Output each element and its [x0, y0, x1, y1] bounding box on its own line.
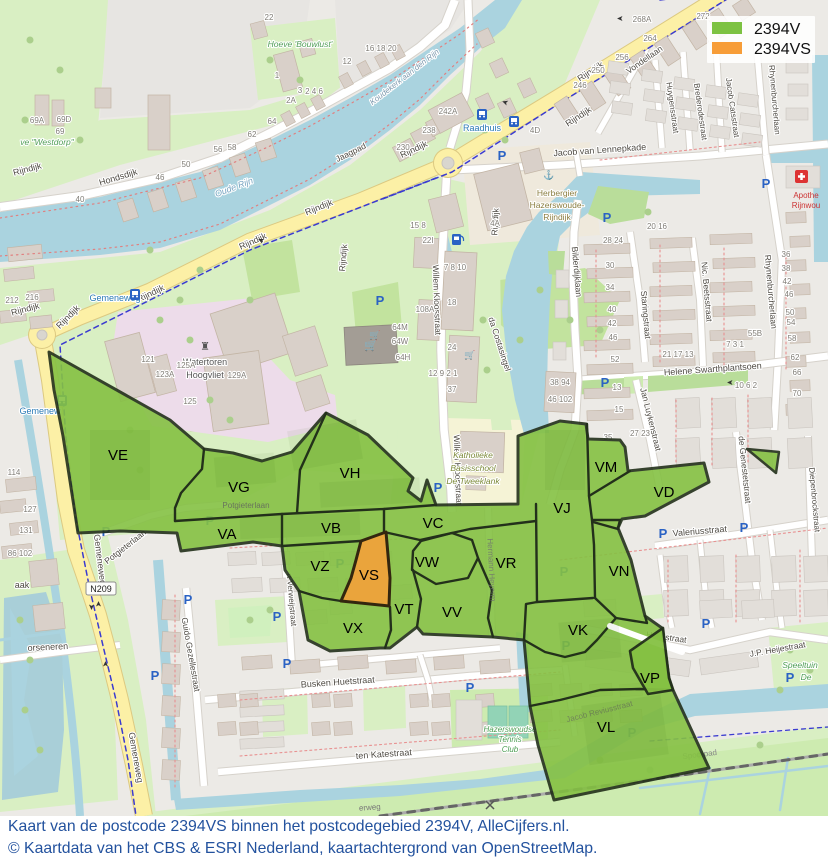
svg-text:46: 46	[156, 173, 165, 182]
svg-text:18: 18	[448, 298, 457, 307]
svg-text:40: 40	[76, 195, 85, 204]
svg-text:24: 24	[448, 343, 457, 352]
svg-text:127: 127	[23, 505, 37, 514]
svg-text:⚓: ⚓	[543, 169, 554, 180]
svg-text:P: P	[601, 375, 610, 390]
svg-text:125: 125	[183, 397, 197, 406]
svg-text:2 4 6: 2 4 6	[305, 87, 323, 96]
svg-text:P: P	[283, 656, 292, 671]
svg-text:131: 131	[19, 526, 33, 535]
svg-text:21 17 13: 21 17 13	[662, 350, 694, 359]
svg-text:212: 212	[5, 296, 19, 305]
svg-text:246: 246	[573, 81, 587, 90]
svg-text:➤: ➤	[94, 600, 103, 607]
svg-text:VK: VK	[568, 622, 588, 639]
svg-text:VM: VM	[595, 459, 618, 476]
svg-text:123A: 123A	[156, 370, 175, 379]
svg-text:Speeltuin: Speeltuin	[782, 660, 818, 670]
svg-text:🛒: 🛒	[464, 349, 475, 360]
svg-text:22: 22	[265, 13, 274, 22]
svg-text:46 102: 46 102	[548, 395, 573, 404]
svg-text:28 24: 28 24	[603, 236, 624, 245]
svg-text:129A: 129A	[228, 371, 247, 380]
svg-text:40: 40	[608, 305, 617, 314]
svg-text:46: 46	[609, 333, 618, 342]
svg-text:P: P	[659, 526, 668, 541]
svg-text:VL: VL	[597, 719, 615, 736]
svg-text:VD: VD	[654, 484, 675, 501]
svg-text:VZ: VZ	[310, 558, 329, 575]
svg-text:34: 34	[606, 283, 615, 292]
svg-text:37: 37	[448, 385, 457, 394]
svg-text:12: 12	[343, 57, 352, 66]
svg-text:➤: ➤	[726, 378, 733, 387]
svg-text:P: P	[498, 148, 507, 163]
svg-text:ve "Westdorp": ve "Westdorp"	[20, 137, 75, 147]
svg-text:VT: VT	[394, 601, 413, 618]
svg-text:VJ: VJ	[553, 500, 571, 517]
svg-text:P: P	[151, 668, 160, 683]
svg-text:Apothe: Apothe	[793, 191, 819, 200]
svg-text:Basisschool: Basisschool	[450, 463, 496, 473]
svg-text:64H: 64H	[396, 353, 411, 362]
svg-text:Club: Club	[502, 745, 519, 754]
svg-text:50: 50	[182, 160, 191, 169]
svg-text:46: 46	[785, 290, 794, 299]
svg-text:VX: VX	[343, 620, 363, 637]
svg-text:Rijndijk: Rijndijk	[543, 212, 571, 222]
svg-text:230: 230	[396, 143, 410, 152]
svg-text:264: 264	[643, 34, 657, 43]
svg-text:P: P	[376, 293, 385, 308]
svg-text:2394V: 2394V	[754, 21, 801, 38]
svg-text:Potgieterlaan: Potgieterlaan	[222, 501, 269, 510]
svg-text:Hoeve 'Bouwlust': Hoeve 'Bouwlust'	[268, 39, 333, 49]
svg-text:64: 64	[268, 117, 277, 126]
svg-text:Gemenew: Gemenew	[19, 406, 61, 416]
svg-text:P: P	[702, 616, 711, 631]
svg-text:125A: 125A	[177, 361, 196, 370]
svg-text:256: 256	[615, 53, 629, 62]
svg-text:86 102: 86 102	[8, 549, 33, 558]
svg-text:🛒: 🛒	[364, 339, 378, 352]
svg-text:16 18 20: 16 18 20	[365, 44, 397, 53]
svg-text:🛒: 🛒	[369, 329, 380, 340]
svg-text:Rijnwou: Rijnwou	[792, 201, 820, 210]
svg-text:69A: 69A	[30, 116, 45, 125]
svg-text:30: 30	[606, 261, 615, 270]
svg-text:Hazerswoudse: Hazerswoudse	[484, 725, 537, 734]
svg-text:P: P	[603, 210, 612, 225]
svg-text:2A: 2A	[286, 96, 296, 105]
svg-text:3: 3	[298, 86, 303, 95]
svg-text:66: 66	[793, 368, 802, 377]
svg-text:P: P	[740, 520, 749, 535]
svg-text:22I: 22I	[422, 236, 433, 245]
svg-text:P: P	[786, 670, 795, 685]
svg-text:55B: 55B	[748, 329, 762, 338]
svg-text:De: De	[801, 672, 812, 682]
svg-text:38: 38	[782, 264, 791, 273]
svg-text:VP: VP	[640, 670, 660, 687]
svg-text:Herbergier: Herbergier	[537, 188, 577, 198]
svg-text:52: 52	[611, 355, 620, 364]
svg-text:38 94: 38 94	[550, 378, 571, 387]
svg-text:P: P	[273, 609, 282, 624]
svg-text:108A: 108A	[416, 305, 435, 314]
svg-text:62: 62	[791, 353, 800, 362]
svg-text:➤: ➤	[616, 14, 623, 23]
svg-text:1: 1	[275, 71, 280, 80]
svg-text:42: 42	[783, 277, 792, 286]
svg-text:VR: VR	[496, 555, 517, 572]
svg-text:15 8: 15 8	[410, 221, 426, 230]
svg-text:N209: N209	[90, 584, 112, 594]
svg-text:P: P	[762, 176, 771, 191]
svg-text:216: 216	[25, 293, 39, 302]
svg-text:58: 58	[228, 143, 237, 152]
svg-text:VH: VH	[340, 465, 361, 482]
svg-text:aak: aak	[15, 580, 30, 590]
svg-text:♜: ♜	[200, 341, 210, 353]
svg-text:Katholieke: Katholieke	[453, 450, 493, 460]
svg-text:VA: VA	[218, 526, 237, 543]
svg-text:50: 50	[786, 308, 795, 317]
svg-text:VB: VB	[321, 520, 341, 537]
svg-text:VC: VC	[423, 515, 444, 532]
svg-text:VG: VG	[228, 479, 250, 496]
svg-text:69D: 69D	[57, 115, 72, 124]
svg-text:P: P	[184, 592, 193, 607]
svg-text:114: 114	[8, 468, 21, 477]
svg-text:4A: 4A	[490, 219, 500, 228]
svg-text:15: 15	[615, 405, 624, 414]
svg-text:238: 238	[422, 126, 436, 135]
svg-text:VS: VS	[359, 567, 379, 584]
svg-text:36: 36	[782, 250, 791, 259]
svg-text:70: 70	[793, 389, 802, 398]
svg-text:242A: 242A	[439, 107, 458, 116]
svg-text:64M: 64M	[392, 323, 408, 332]
svg-text:VN: VN	[609, 563, 630, 580]
svg-text:62: 62	[248, 130, 257, 139]
svg-text:58: 58	[788, 334, 797, 343]
svg-text:VE: VE	[108, 447, 128, 464]
svg-text:268A: 268A	[633, 15, 652, 24]
svg-text:orseneren: orseneren	[27, 641, 68, 653]
svg-text:20 16: 20 16	[647, 222, 668, 231]
svg-text:64W: 64W	[392, 337, 409, 346]
svg-text:Hazerswoude-: Hazerswoude-	[530, 200, 585, 210]
svg-text:VW: VW	[415, 554, 440, 571]
svg-text:56: 56	[214, 145, 223, 154]
svg-text:27 23: 27 23	[630, 429, 651, 438]
svg-text:250: 250	[591, 66, 605, 75]
svg-text:121: 121	[141, 355, 155, 364]
svg-text:De Tweeklank: De Tweeklank	[446, 476, 500, 486]
svg-text:4D: 4D	[530, 126, 540, 135]
svg-text:12 9 2 1: 12 9 2 1	[429, 369, 458, 378]
svg-text:Raadhuis: Raadhuis	[463, 123, 502, 133]
svg-text:69: 69	[56, 127, 65, 136]
svg-text:2394VS: 2394VS	[754, 41, 811, 58]
svg-text:7 3 1: 7 3 1	[726, 340, 744, 349]
svg-text:Tennis: Tennis	[498, 735, 521, 744]
svg-text:P: P	[466, 680, 475, 695]
svg-text:13: 13	[613, 383, 622, 392]
svg-text:7 8 10: 7 8 10	[444, 263, 467, 272]
svg-text:10 6 2: 10 6 2	[735, 381, 758, 390]
svg-text:erweg: erweg	[359, 802, 381, 812]
svg-text:P: P	[434, 480, 443, 495]
svg-text:➤: ➤	[101, 660, 110, 667]
svg-text:Hoogvliet: Hoogvliet	[186, 370, 224, 380]
svg-text:42: 42	[608, 319, 617, 328]
svg-text:VV: VV	[442, 604, 462, 621]
svg-text:54: 54	[787, 318, 796, 327]
